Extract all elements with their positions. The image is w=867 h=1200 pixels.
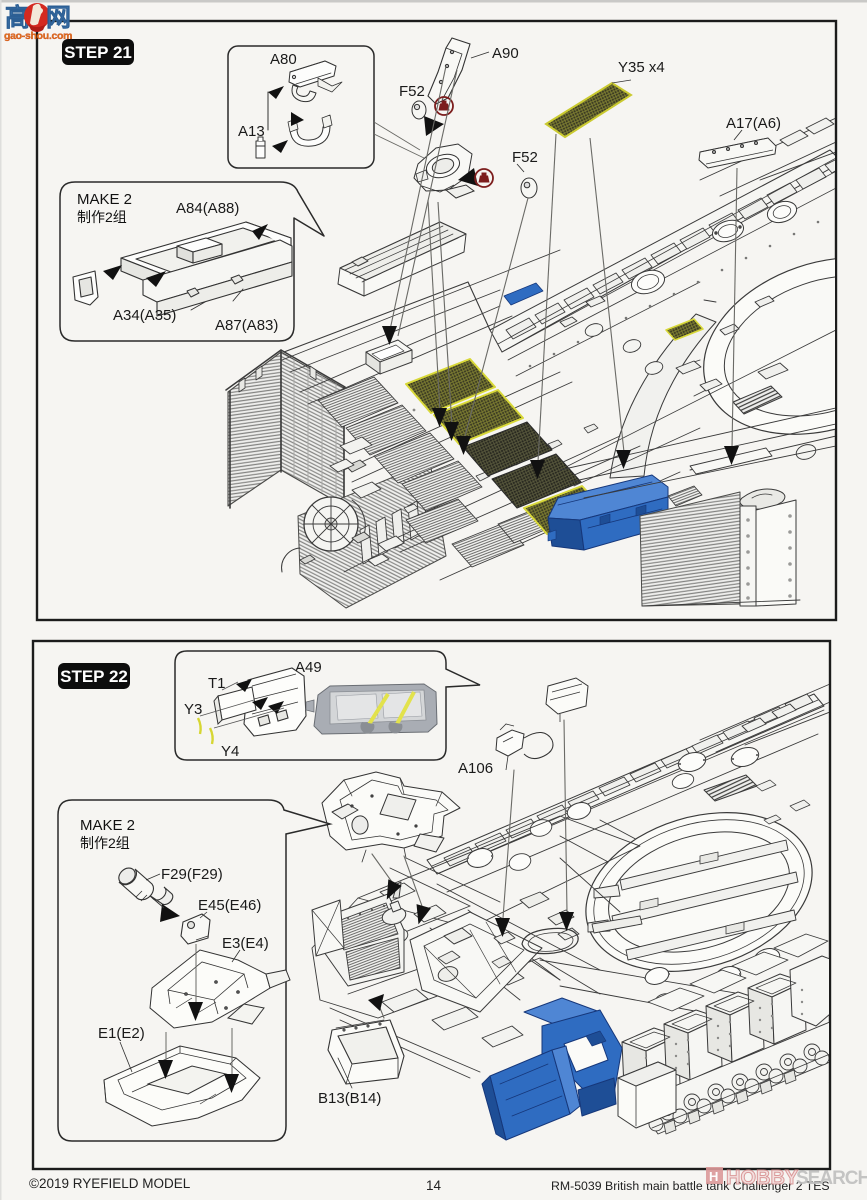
- svg-text:制作2组: 制作2组: [80, 835, 130, 851]
- svg-text:A87(A83): A87(A83): [215, 317, 278, 334]
- svg-text:A17(A6): A17(A6): [726, 115, 781, 132]
- svg-text:STEP 22: STEP 22: [60, 667, 128, 686]
- svg-text:Y4: Y4: [221, 743, 239, 760]
- svg-text:A106: A106: [458, 760, 493, 777]
- svg-text:Y3: Y3: [184, 701, 202, 718]
- svg-text:14: 14: [426, 1178, 442, 1193]
- svg-text:©2019 RYEFIELD MODEL: ©2019 RYEFIELD MODEL: [29, 1176, 191, 1191]
- svg-text:Y35 x4: Y35 x4: [618, 59, 665, 76]
- svg-text:E3(E4): E3(E4): [222, 935, 269, 952]
- svg-text:网: 网: [46, 4, 71, 32]
- svg-text:H: H: [709, 1169, 718, 1184]
- svg-text:A84(A88): A84(A88): [176, 200, 239, 217]
- svg-text:HOBBY: HOBBY: [726, 1167, 799, 1189]
- svg-text:STEP 21: STEP 21: [64, 43, 132, 62]
- svg-text:E1(E2): E1(E2): [98, 1025, 145, 1042]
- svg-text:F29(F29): F29(F29): [161, 866, 223, 883]
- svg-text:SEARCH: SEARCH: [796, 1168, 867, 1189]
- svg-text:gao-shou.com: gao-shou.com: [4, 30, 72, 42]
- svg-text:A90: A90: [492, 45, 519, 62]
- svg-text:A80: A80: [270, 51, 297, 68]
- svg-text:MAKE 2: MAKE 2: [77, 191, 132, 208]
- svg-text:MAKE 2: MAKE 2: [80, 817, 135, 834]
- svg-text:A34(A35): A34(A35): [113, 307, 176, 324]
- svg-text:F52: F52: [399, 83, 425, 100]
- svg-text:E45(E46): E45(E46): [198, 897, 261, 914]
- svg-text:制作2组: 制作2组: [77, 209, 127, 225]
- svg-text:B13(B14): B13(B14): [318, 1090, 381, 1107]
- svg-text:F52: F52: [512, 149, 538, 166]
